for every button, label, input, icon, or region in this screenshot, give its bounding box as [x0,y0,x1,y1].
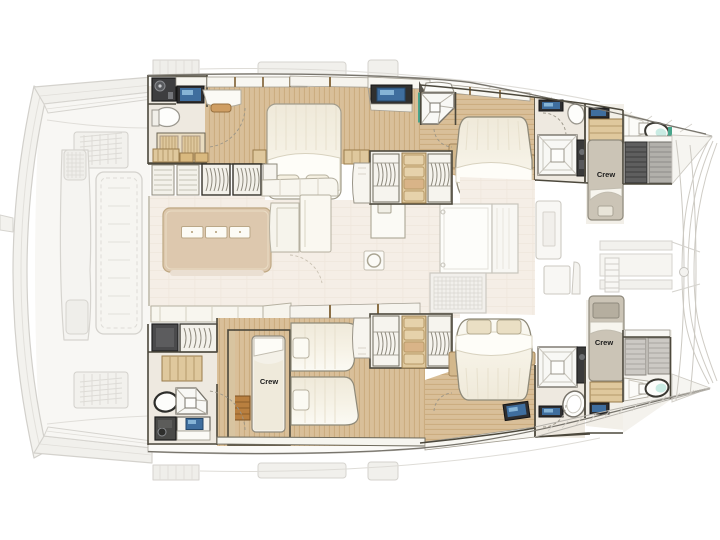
svg-text:Crew: Crew [595,338,614,347]
svg-text:Crew: Crew [260,377,279,386]
svg-text:Crew: Crew [597,170,616,179]
